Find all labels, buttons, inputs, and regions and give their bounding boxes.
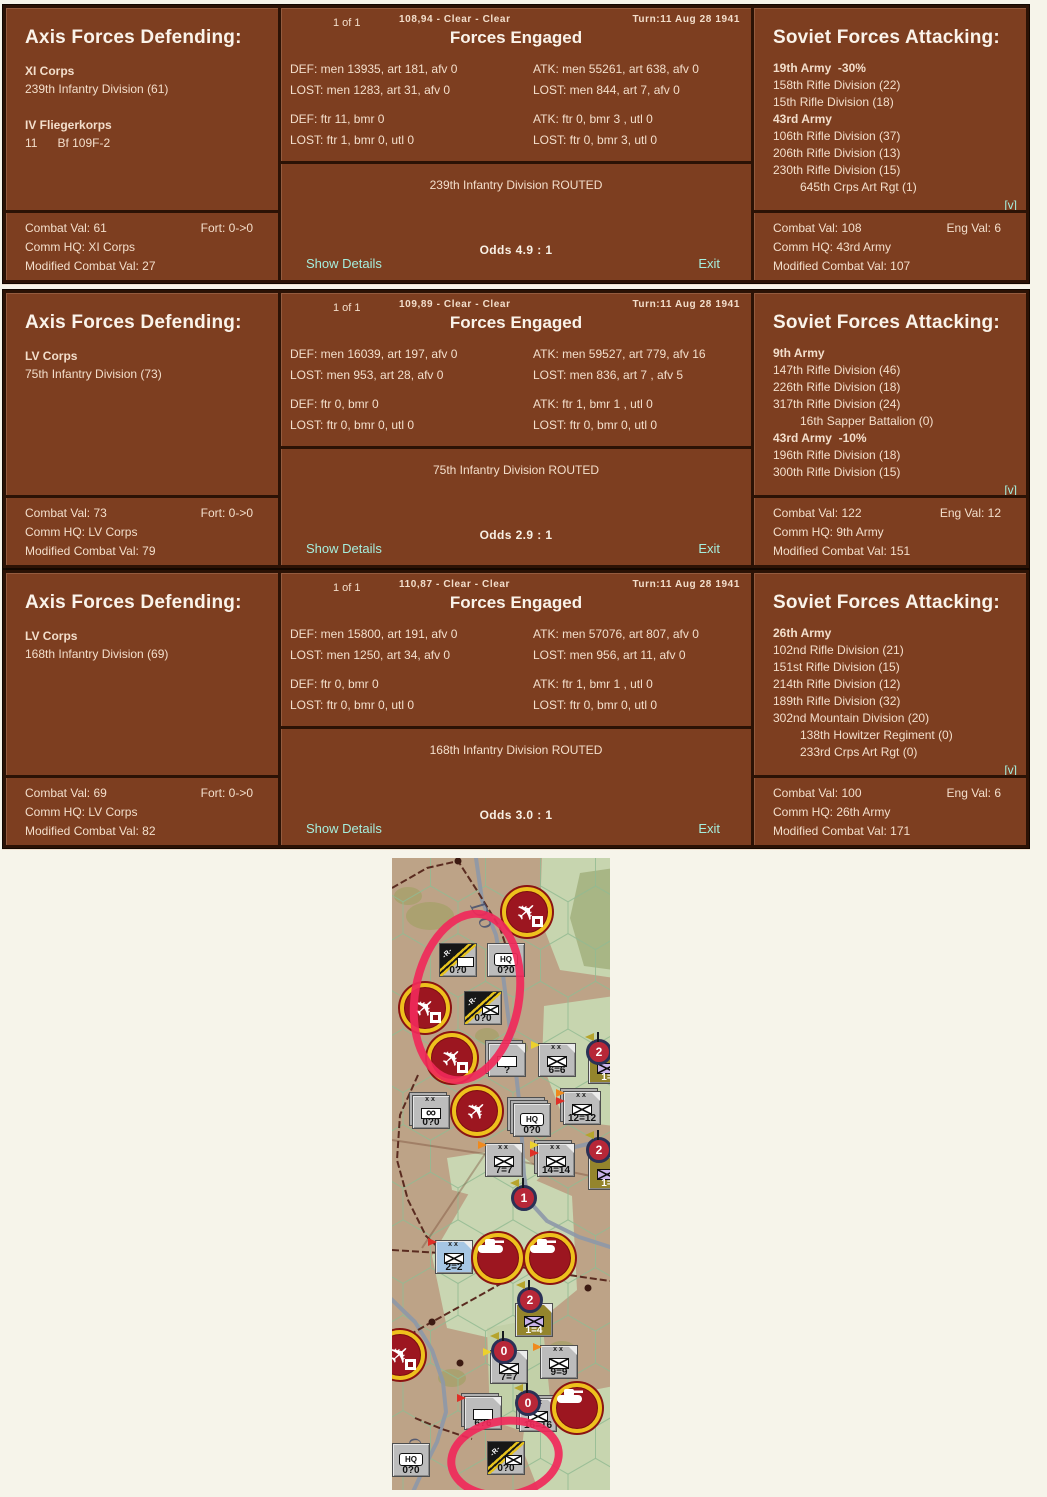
counter-value-label: 14=14 <box>538 1165 574 1176</box>
show-details-link[interactable]: Show Details <box>306 541 382 556</box>
unit-counter[interactable]: xx12=12 <box>563 1091 601 1125</box>
corner-fold-icon <box>566 1044 575 1053</box>
counter-value-label: 0?0 <box>413 1117 449 1128</box>
unit-list-item: 214th Rifle Division (12) <box>773 676 1026 693</box>
corner-fold-icon <box>518 1351 527 1360</box>
unit-list-item: 19th Army -30% <box>773 60 1026 77</box>
defender-modified-val: Modified Combat Val: 79 <box>25 542 259 561</box>
fort-value: Fort: 0->0 <box>201 784 259 803</box>
counter-value-label: 2=2 <box>436 1262 472 1273</box>
counter-value-label: 1= <box>589 1072 610 1083</box>
turn-info: Turn:11 Aug 28 1941 <box>632 579 740 590</box>
air-def: DEF: ftr 11, bmr 0 <box>290 109 533 130</box>
battle-site-marker[interactable]: 2 <box>586 1039 610 1065</box>
flag-icon <box>514 1384 523 1392</box>
forces-engaged-title: Forces Engaged <box>281 593 751 613</box>
defender-title: Axis Forces Defending: <box>6 293 278 334</box>
ground-def: DEF: men 15800, art 191, afv 0 <box>290 624 533 645</box>
pennant-flag-icon <box>428 1238 437 1246</box>
flag-icon <box>516 1281 525 1289</box>
forces-engaged-panel: 1 of 1 109,89 - Clear - Clear Turn:11 Au… <box>281 293 751 565</box>
unit-list-item: 230th Rifle Division (15) <box>773 162 1026 179</box>
counter-face: xx∞0?0 <box>412 1095 450 1129</box>
air-atk: ATK: ftr 1, bmr 1 , utl 0 <box>533 397 653 411</box>
attacker-stats: Combat Val: 100Eng Val: 6 Comm HQ: 26th … <box>754 775 1026 845</box>
combat-results-dialog-2: Axis Forces Defending: LV Corps75th Infa… <box>2 289 1030 569</box>
attacker-modified-val: Modified Combat Val: 107 <box>773 257 1007 276</box>
attacker-comm-hq: Comm HQ: 26th Army <box>773 803 1007 822</box>
defender-modified-val: Modified Combat Val: 27 <box>25 257 259 276</box>
counter-face: xx2=2 <box>435 1240 473 1274</box>
engaged-grid: DEF: men 15800, art 191, afv 0ATK: men 5… <box>290 624 749 716</box>
turn-info: Turn:11 Aug 28 1941 <box>632 299 740 310</box>
ground-def-lost: LOST: men 1283, art 31, afv 0 <box>290 80 533 101</box>
counter-face: xx6=6 <box>538 1043 576 1077</box>
turn-info: Turn:11 Aug 28 1941 <box>632 14 740 25</box>
air-def: DEF: ftr 0, bmr 0 <box>290 674 533 695</box>
armor-battle-marker[interactable] <box>552 1383 602 1433</box>
armor-battle-marker[interactable] <box>473 1233 523 1283</box>
attacker-panel: Soviet Forces Attacking: 19th Army -30%1… <box>754 8 1026 280</box>
defender-combat-val: Combat Val: 73 <box>25 504 107 523</box>
unit-counter[interactable]: xx7=7 <box>485 1143 523 1177</box>
air-atk: ATK: ftr 1, bmr 1 , utl 0 <box>533 677 653 691</box>
attacker-title: Soviet Forces Attacking: <box>754 293 1026 334</box>
defender-panel: Axis Forces Defending: LV Corps168th Inf… <box>6 573 278 845</box>
hq-unit-counter[interactable]: HQ0?0 <box>392 1443 430 1477</box>
attacker-unit-list: 19th Army -30%158th Rifle Division (22)1… <box>754 49 1026 196</box>
combat-results-dialog-1: Axis Forces Defending: XI Corps239th Inf… <box>2 4 1030 284</box>
flag-icon <box>490 1332 499 1340</box>
unit-list-item: 317th Rifle Division (24) <box>773 396 1026 413</box>
air-mission-marker[interactable]: ✈ <box>452 1086 502 1136</box>
corner-fold-icon <box>568 1346 577 1355</box>
counter-value-label: 0?0 <box>393 1465 429 1476</box>
divider <box>281 161 751 164</box>
battle-site-marker[interactable]: 2 <box>586 1137 610 1163</box>
pennant-flag-icon <box>530 1149 539 1157</box>
unit-list-item: 233rd Crps Art Rgt (0) <box>773 744 1026 761</box>
unit-list-item: 645th Crps Art Rgt (1) <box>773 179 1026 196</box>
defender-comm-hq: Comm HQ: LV Corps <box>25 523 259 542</box>
defender-comm-hq: Comm HQ: LV Corps <box>25 803 259 822</box>
hex-info: 110,87 - Clear - Clear <box>399 579 510 590</box>
unit-list-item: 43rd Army -10% <box>773 430 1026 447</box>
ground-def: DEF: men 16039, art 197, afv 0 <box>290 344 533 365</box>
attacker-panel: Soviet Forces Attacking: 9th Army147th R… <box>754 293 1026 565</box>
ground-def: DEF: men 13935, art 181, afv 0 <box>290 59 533 80</box>
attacker-comm-hq: Comm HQ: 9th Army <box>773 523 1007 542</box>
air-atk-lost: LOST: ftr 0, bmr 3, utl 0 <box>533 133 657 147</box>
unit-counter[interactable]: xx9=9 <box>540 1345 578 1379</box>
pennant-flag-icon <box>530 1141 539 1149</box>
unit-counter[interactable]: xx2=2 <box>435 1240 473 1274</box>
corner-fold-icon <box>513 1144 522 1153</box>
flag-pole <box>502 1331 504 1341</box>
attacker-combat-val: Combat Val: 108 <box>773 219 862 238</box>
unit-list-item: IV Fliegerkorps <box>25 116 278 134</box>
air-def-lost: LOST: ftr 1, bmr 0, utl 0 <box>290 130 533 151</box>
forces-engaged-title: Forces Engaged <box>281 28 751 48</box>
attacker-stats: Combat Val: 108Eng Val: 6 Comm HQ: 43rd … <box>754 210 1026 280</box>
ground-atk-lost: LOST: men 956, art 11, afv 0 <box>533 648 686 662</box>
attacker-combat-val: Combat Val: 100 <box>773 784 862 803</box>
divider <box>281 726 751 729</box>
exit-link[interactable]: Exit <box>698 821 720 836</box>
unit-list-item: 189th Rifle Division (32) <box>773 693 1026 710</box>
exit-link[interactable]: Exit <box>698 256 720 271</box>
eng-val: Eng Val: 6 <box>947 219 1007 238</box>
unit-list-item: 151st Rifle Division (15) <box>773 659 1026 676</box>
eng-val: Eng Val: 12 <box>940 504 1007 523</box>
attacker-title: Soviet Forces Attacking: <box>754 573 1026 614</box>
tank-icon <box>556 1387 584 1405</box>
game-screen: { "colors":{"panel_brown":"#7d3e20","fra… <box>0 0 1047 1497</box>
air-def-lost: LOST: ftr 0, bmr 0, utl 0 <box>290 415 533 436</box>
flag-pole <box>597 1032 599 1042</box>
unit-list-item: LV Corps <box>25 347 278 365</box>
defender-panel: Axis Forces Defending: XI Corps239th Inf… <box>6 8 278 280</box>
attacker-combat-val: Combat Val: 122 <box>773 504 862 523</box>
exit-link[interactable]: Exit <box>698 541 720 556</box>
pennant-flag-icon <box>556 1097 565 1105</box>
plane-icon: ✈ <box>461 1095 493 1128</box>
corner-fold-icon <box>543 1304 552 1313</box>
attacker-comm-hq: Comm HQ: 43rd Army <box>773 238 1007 257</box>
counter-face: HQ0?0 <box>513 1103 551 1137</box>
show-details-link[interactable]: Show Details <box>306 256 382 271</box>
ground-atk-lost: LOST: men 844, art 7, afv 0 <box>533 83 680 97</box>
counter-value-label: 9=9 <box>541 1367 577 1378</box>
odds-text: Odds 2.9 : 1 <box>281 528 751 542</box>
fort-value: Fort: 0->0 <box>201 504 259 523</box>
flag-icon <box>585 1131 594 1139</box>
ground-def-lost: LOST: men 1250, art 34, afv 0 <box>290 645 533 666</box>
ground-atk: ATK: men 59527, art 779, afv 16 <box>533 347 706 361</box>
unit-list-item <box>25 98 278 116</box>
division-size-label: xx <box>413 1096 449 1103</box>
odds-text: Odds 3.0 : 1 <box>281 808 751 822</box>
defender-combat-val: Combat Val: 61 <box>25 219 107 238</box>
unit-list-item: 147th Rifle Division (46) <box>773 362 1026 379</box>
pennant-flag-icon <box>478 1141 487 1149</box>
counter-value-label: 1=4 <box>516 1325 552 1336</box>
pennant-flag-icon <box>533 1343 542 1351</box>
attacker-unit-list: 9th Army147th Rifle Division (46)226th R… <box>754 334 1026 481</box>
battle-site-marker[interactable]: 0 <box>491 1338 517 1364</box>
unit-list-item: XI Corps <box>25 62 278 80</box>
counter-face: xx12=12 <box>563 1091 601 1125</box>
flag-pole <box>526 1383 528 1393</box>
unit-list-item: 15th Rifle Division (18) <box>773 94 1026 111</box>
pennant-flag-icon <box>531 1041 540 1049</box>
unit-list-item: 9th Army <box>773 345 1026 362</box>
ground-atk: ATK: men 55261, art 638, afv 0 <box>533 62 699 76</box>
defender-panel: Axis Forces Defending: LV Corps75th Infa… <box>6 293 278 565</box>
unit-list-item: 106th Rifle Division (37) <box>773 128 1026 145</box>
unit-list-item: 196th Rifle Division (18) <box>773 447 1026 464</box>
defender-stats: Combat Val: 69Fort: 0->0 Comm HQ: LV Cor… <box>6 775 278 845</box>
forces-engaged-panel: 1 of 1 108,94 - Clear - Clear Turn:11 Au… <box>281 8 751 280</box>
counter-value-label: 6=6 <box>539 1065 575 1076</box>
unit-list-item: 300th Rifle Division (15) <box>773 464 1026 481</box>
engaged-grid: DEF: men 13935, art 181, afv 0ATK: men 5… <box>290 59 749 151</box>
counter-value-label: 1= <box>589 1178 610 1189</box>
hq-unit-counter[interactable]: HQ0?0 <box>513 1103 551 1137</box>
odds-text: Odds 4.9 : 1 <box>281 243 751 257</box>
unit-list-item: 26th Army <box>773 625 1026 642</box>
ground-atk: ATK: men 57076, art 807, afv 0 <box>533 627 699 641</box>
combat-results-dialog-3: Axis Forces Defending: LV Corps168th Inf… <box>2 569 1030 849</box>
attacker-unit-list: 26th Army102nd Rifle Division (21)151st … <box>754 614 1026 761</box>
counter-face: xx9=9 <box>540 1345 578 1379</box>
unit-list-item: 168th Infantry Division (69) <box>25 645 278 663</box>
corner-fold-icon <box>591 1092 600 1101</box>
bomb-icon <box>405 1359 416 1370</box>
forces-engaged-title: Forces Engaged <box>281 313 751 333</box>
unit-counter[interactable]: xx14=14 <box>537 1143 575 1177</box>
attacker-title: Soviet Forces Attacking: <box>754 8 1026 49</box>
map-view[interactable]: DoGa-R-0?0HQ0?0-R-0?0?xx6=61=xx∞0?0HQ0?0… <box>392 858 610 1490</box>
combat-result-text: 75th Infantry Division ROUTED <box>281 463 751 477</box>
hex-info: 109,89 - Clear - Clear <box>399 299 511 310</box>
defender-unit-list: LV Corps75th Infantry Division (73) <box>6 334 278 383</box>
air-atk-lost: LOST: ftr 0, bmr 0, utl 0 <box>533 698 657 712</box>
unit-list-item: 226th Rifle Division (18) <box>773 379 1026 396</box>
hex-info: 108,94 - Clear - Clear <box>399 14 511 25</box>
defender-stats: Combat Val: 61Fort: 0->0 Comm HQ: XI Cor… <box>6 210 278 280</box>
defender-unit-list: LV Corps168th Infantry Division (69) <box>6 614 278 663</box>
unit-list-item: 158th Rifle Division (22) <box>773 77 1026 94</box>
corner-fold-icon <box>565 1144 574 1153</box>
unit-list-item: 239th Infantry Division (61) <box>25 80 278 98</box>
pennant-flag-icon <box>556 1089 565 1097</box>
defender-unit-list: XI Corps239th Infantry Division (61) IV … <box>6 49 278 152</box>
ground-def-lost: LOST: men 953, art 28, afv 0 <box>290 365 533 386</box>
flag-pole <box>522 1178 524 1188</box>
defender-title: Axis Forces Defending: <box>6 8 278 49</box>
corner-fold-icon <box>463 1241 472 1250</box>
attacker-modified-val: Modified Combat Val: 171 <box>773 822 1007 841</box>
unit-counter[interactable]: xx∞0?0 <box>412 1095 450 1129</box>
counter-value-label: 7=7 <box>491 1372 527 1383</box>
combat-result-text: 168th Infantry Division ROUTED <box>281 743 751 757</box>
ground-atk-lost: LOST: men 836, art 7 , afv 5 <box>533 368 683 382</box>
corner-fold-icon <box>516 1044 525 1053</box>
defender-combat-val: Combat Val: 69 <box>25 784 107 803</box>
counter-value-label: ? <box>489 1065 525 1076</box>
unit-list-item: 102nd Rifle Division (21) <box>773 642 1026 659</box>
armor-battle-marker[interactable] <box>525 1233 575 1283</box>
unit-counter[interactable]: xx6=6 <box>538 1043 576 1077</box>
flag-icon <box>510 1179 519 1187</box>
fort-value: Fort: 0->0 <box>201 219 259 238</box>
defender-stats: Combat Val: 73Fort: 0->0 Comm HQ: LV Cor… <box>6 495 278 565</box>
battle-site-marker[interactable]: 1 <box>511 1185 537 1211</box>
tank-icon <box>529 1237 557 1255</box>
eng-val: Eng Val: 6 <box>947 784 1007 803</box>
unit-list-item: 43rd Army <box>773 111 1026 128</box>
corner-fold-icon <box>492 1397 501 1406</box>
unit-list-item: 75th Infantry Division (73) <box>25 365 278 383</box>
unit-list-item: 11 Bf 109F-2 <box>25 134 278 152</box>
air-atk: ATK: ftr 0, bmr 3 , utl 0 <box>533 112 653 126</box>
battle-site-marker[interactable]: 0 <box>515 1390 541 1416</box>
tank-icon <box>477 1237 505 1255</box>
attacker-stats: Combat Val: 122Eng Val: 12 Comm HQ: 9th … <box>754 495 1026 565</box>
air-atk-lost: LOST: ftr 0, bmr 0, utl 0 <box>533 418 657 432</box>
engaged-grid: DEF: men 16039, art 197, afv 0ATK: men 5… <box>290 344 749 436</box>
defender-comm-hq: Comm HQ: XI Corps <box>25 238 259 257</box>
air-def-lost: LOST: ftr 0, bmr 0, utl 0 <box>290 695 533 716</box>
flag-pole <box>597 1130 599 1140</box>
defender-modified-val: Modified Combat Val: 82 <box>25 822 259 841</box>
attacker-modified-val: Modified Combat Val: 151 <box>773 542 1007 561</box>
pennant-flag-icon <box>457 1394 466 1402</box>
attacker-panel: Soviet Forces Attacking: 26th Army102nd … <box>754 573 1026 845</box>
unit-list-item: LV Corps <box>25 627 278 645</box>
unit-list-item: 138th Howitzer Regiment (0) <box>773 727 1026 744</box>
defender-title: Axis Forces Defending: <box>6 573 278 614</box>
counter-face: HQ0?0 <box>392 1443 430 1477</box>
forces-engaged-panel: 1 of 1 110,87 - Clear - Clear Turn:11 Au… <box>281 573 751 845</box>
combat-result-text: 239th Infantry Division ROUTED <box>281 178 751 192</box>
bomb-icon <box>532 916 543 927</box>
counter-value-label: 0?0 <box>514 1125 550 1136</box>
battle-site-marker[interactable]: 2 <box>517 1287 543 1313</box>
counter-value-label: 7=7 <box>486 1165 522 1176</box>
unit-list-item: 16th Sapper Battalion (0) <box>773 413 1026 430</box>
counter-face: xx7=7 <box>485 1143 523 1177</box>
unit-list-item: 302nd Mountain Division (20) <box>773 710 1026 727</box>
counter-face: xx14=14 <box>537 1143 575 1177</box>
flag-pole <box>528 1280 530 1290</box>
unit-list-item: 206th Rifle Division (13) <box>773 145 1026 162</box>
show-details-link[interactable]: Show Details <box>306 821 382 836</box>
counter-value-label: 12=12 <box>564 1113 600 1124</box>
flag-icon <box>585 1033 594 1041</box>
divider <box>281 446 751 449</box>
air-def: DEF: ftr 0, bmr 0 <box>290 394 533 415</box>
